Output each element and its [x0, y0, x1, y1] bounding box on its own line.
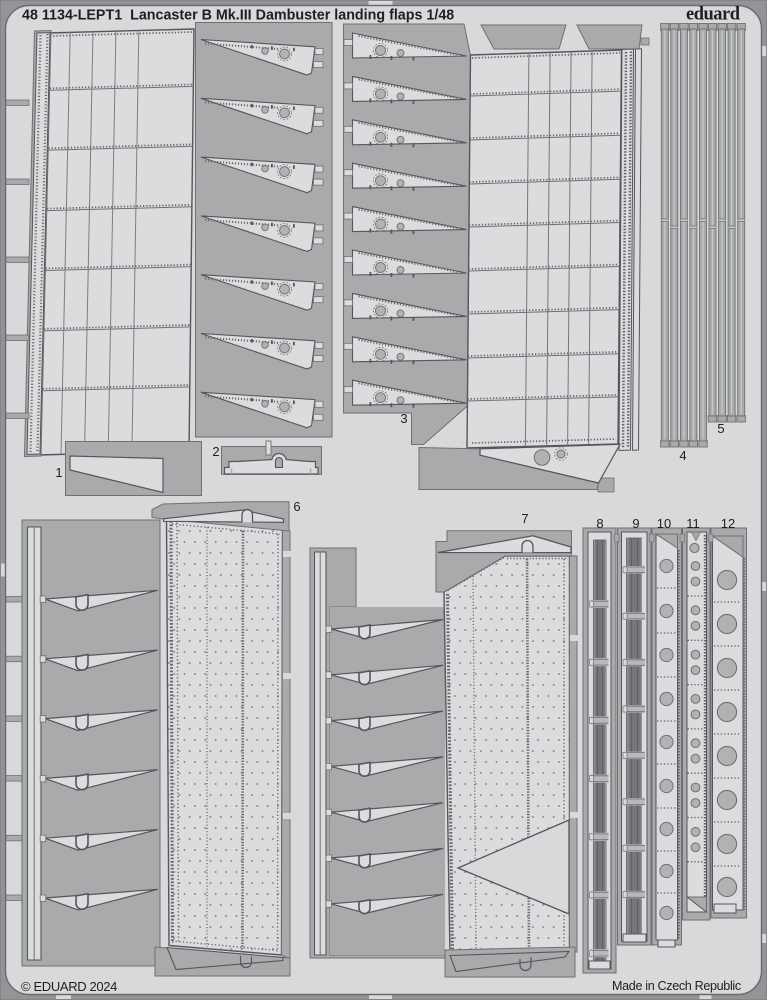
svg-text:1: 1 — [55, 465, 62, 480]
svg-text:10: 10 — [657, 516, 671, 531]
svg-text:11: 11 — [686, 516, 700, 531]
svg-text:Made in Czech Republic: Made in Czech Republic — [612, 979, 741, 993]
svg-text:eduard: eduard — [686, 5, 741, 25]
svg-text:48 1134-LEPT1 Lancaster B Mk.: 48 1134-LEPT1 Lancaster B Mk.III Dambust… — [22, 8, 454, 24]
svg-text:4: 4 — [679, 448, 686, 463]
svg-text:5: 5 — [717, 421, 724, 436]
svg-text:2: 2 — [212, 444, 219, 459]
svg-text:7: 7 — [521, 511, 528, 526]
svg-text:© EDUARD 2024: © EDUARD 2024 — [21, 979, 117, 994]
svg-text:8: 8 — [596, 516, 603, 531]
svg-text:6: 6 — [293, 499, 300, 514]
svg-text:9: 9 — [632, 516, 639, 531]
svg-text:12: 12 — [721, 516, 735, 531]
svg-text:3: 3 — [400, 411, 407, 426]
